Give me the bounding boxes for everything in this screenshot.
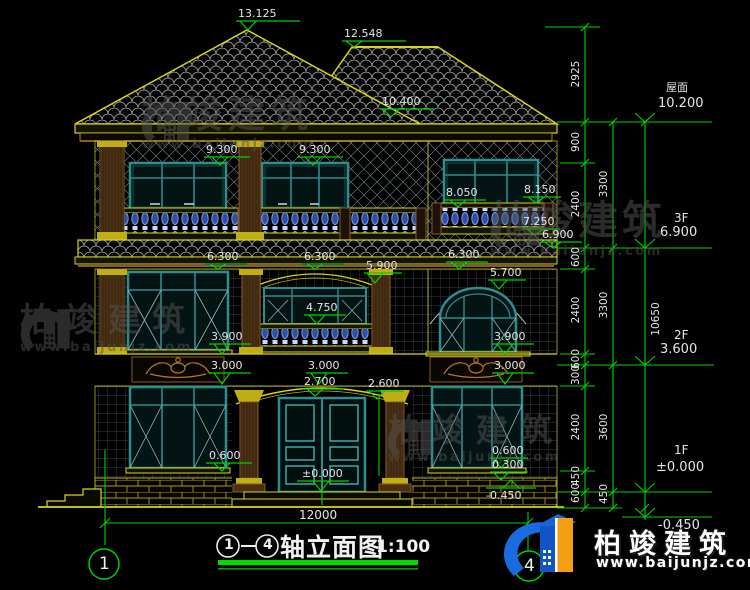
pilaster-3f-middle [236,141,264,240]
mark-arch-mid: 5.900 [366,260,398,273]
title-axis-from: 1 [224,537,234,553]
mark-f1-floor: ±0.000 [302,468,343,481]
mark-f2-head-right: 6.300 [448,249,480,262]
elev-3f: 6.900 [660,226,697,241]
mark-rail2: 4.750 [306,302,338,315]
window-3f-middle [262,163,348,210]
drawing-title: 轴立面图 [280,528,384,564]
mark-ridge-main: 13.125 [238,8,277,21]
mark-f1-head-right: 3.000 [494,360,526,373]
dim-3600: 3600 [598,405,610,449]
mark-f1-head-left: 3.000 [211,360,243,373]
dim-total-10650: 10650 [650,297,662,341]
label-1f: 1F [674,444,689,458]
roof [75,30,557,141]
mark-f2-sill-right: 3.900 [494,331,526,344]
elev-1f: ±0.000 [656,461,704,476]
drawing-scale: 1:100 [376,537,430,557]
mark-porch: 2.600 [368,378,400,391]
side-steps [47,489,101,507]
dim-300: 300 [570,353,582,397]
mark-eave: 10.400 [382,96,421,109]
pilaster-3f-left [97,141,127,240]
dim-900: 900 [570,120,582,164]
mark-rail3-top: 8.150 [524,184,556,197]
brand-logo-url: www.baijunjz.com [596,555,750,571]
dim-450b: 450 [598,472,610,516]
dim-2400a: 2400 [570,182,582,226]
axis-number-1: 1 [99,554,110,574]
mark-f2-head-left: 6.300 [207,251,239,264]
mark-f2-sill-left: 3.900 [211,331,243,344]
mark-f3-head-left: 9.300 [206,144,238,157]
mark-rail3-bottom: 7.250 [523,216,555,229]
dim-600a: 600 [570,235,582,279]
mark-base-right: 0.300 [492,459,524,472]
axis-number-4: 4 [524,556,535,576]
label-roof: 屋面 [666,82,688,95]
dim-2925: 2925 [570,52,582,96]
elevation-drawing [0,0,750,590]
dim-3300a: 3300 [598,162,610,206]
mark-f3-sill-right: 8.050 [446,187,478,200]
dim-overall-width: 12000 [299,509,337,523]
title-axis-to: 4 [263,537,273,553]
elev-roof: 10.200 [658,97,704,112]
dim-600c: 600 [570,471,582,515]
mark-f1-head-mid: 3.000 [308,360,340,373]
dim-2400b: 2400 [570,288,582,332]
mark-f2-head-mid: 6.300 [304,251,336,264]
window-3f-left [130,163,226,210]
mark-arch-right: 5.700 [490,267,522,280]
mark-f1-sill-right: 0.600 [492,445,524,458]
mark-ridge-2: 12.548 [344,28,383,41]
mark-door-head: 2.700 [304,376,336,389]
mark-f3-head-mid: 9.300 [299,144,331,157]
balustrade-3f [110,208,426,240]
cad-elevation-screenshot: 柏竣建筑 www.baijunjz.com 柏竣建筑 www.baijunjz.… [0,0,750,590]
label-3f: 3F [674,212,689,226]
elev-2f: 3.600 [660,343,697,358]
dim-3300b: 3300 [598,283,610,327]
mark-ground: -0.450 [486,490,521,503]
mark-f1-sill-left: 0.600 [209,450,241,463]
dim-2400c: 2400 [570,405,582,449]
mark-slab3: 6.900 [542,229,574,242]
label-2f: 2F [674,329,689,343]
